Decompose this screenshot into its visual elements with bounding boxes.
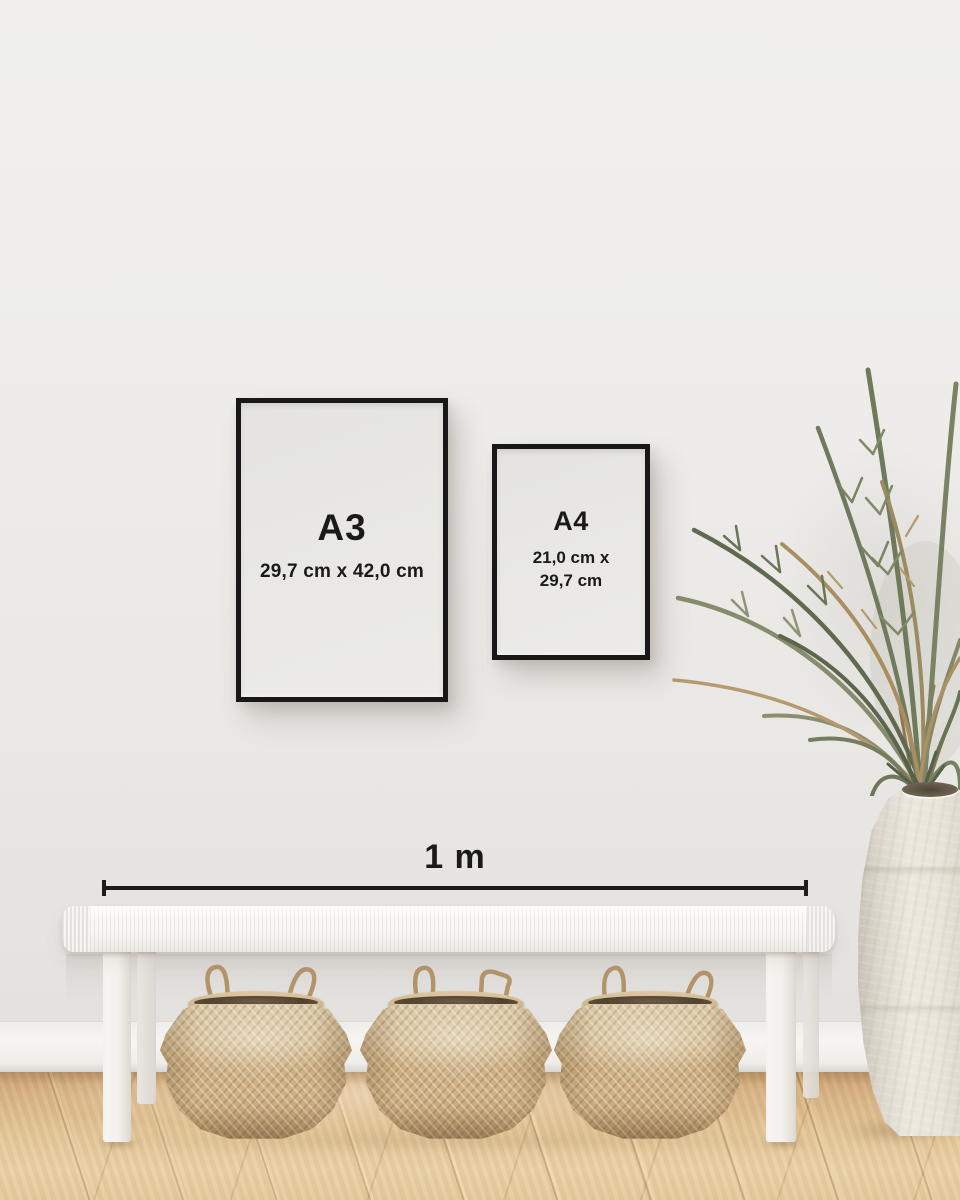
frame-a4: A4 21,0 cm x 29,7 cm xyxy=(492,444,650,660)
frame-a3-paper: A3 29,7 cm x 42,0 cm xyxy=(241,403,443,697)
bench-seat xyxy=(62,906,835,952)
basket-body xyxy=(160,1004,352,1140)
frame-a4-paper: A4 21,0 cm x 29,7 cm xyxy=(497,449,645,655)
frame-a3: A3 29,7 cm x 42,0 cm xyxy=(236,398,448,702)
seagrass-basket-middle xyxy=(360,962,552,1140)
palm-plant xyxy=(630,336,960,796)
scale-ruler-line xyxy=(104,886,806,890)
scale-ruler-tick-right xyxy=(804,880,808,896)
ceramic-vase xyxy=(856,782,960,1136)
frame-a4-size-label: A4 xyxy=(553,506,589,537)
frame-a3-dimensions: 29,7 cm x 42,0 cm xyxy=(260,561,424,583)
scale-label: 1 m xyxy=(104,838,806,877)
vase-body xyxy=(856,789,960,1136)
frame-a4-dimensions-line1: 21,0 cm x xyxy=(533,547,610,569)
seagrass-basket-right xyxy=(554,962,746,1140)
size-guide-scene: A3 29,7 cm x 42,0 cm A4 21,0 cm x 29,7 c… xyxy=(0,0,960,1200)
basket-body xyxy=(554,1004,746,1140)
scale-ruler-tick-left xyxy=(102,880,106,896)
bench-leg-front-right xyxy=(766,950,796,1142)
bench-seat-cord-wrap-right xyxy=(807,906,835,952)
basket-body xyxy=(360,1004,552,1140)
bench-leg-front-left xyxy=(103,950,131,1142)
bench-leg-back-right xyxy=(803,950,819,1098)
bench-leg-back-left xyxy=(137,950,156,1104)
bench-seat-cord-wrap-left xyxy=(62,906,90,952)
frame-a4-dimensions: 21,0 cm x 29,7 cm xyxy=(533,547,610,591)
frame-a3-size-label: A3 xyxy=(317,507,366,549)
seagrass-basket-left xyxy=(160,962,352,1140)
vase-opening xyxy=(902,782,958,797)
frame-a4-dimensions-line2: 29,7 cm xyxy=(533,570,610,592)
